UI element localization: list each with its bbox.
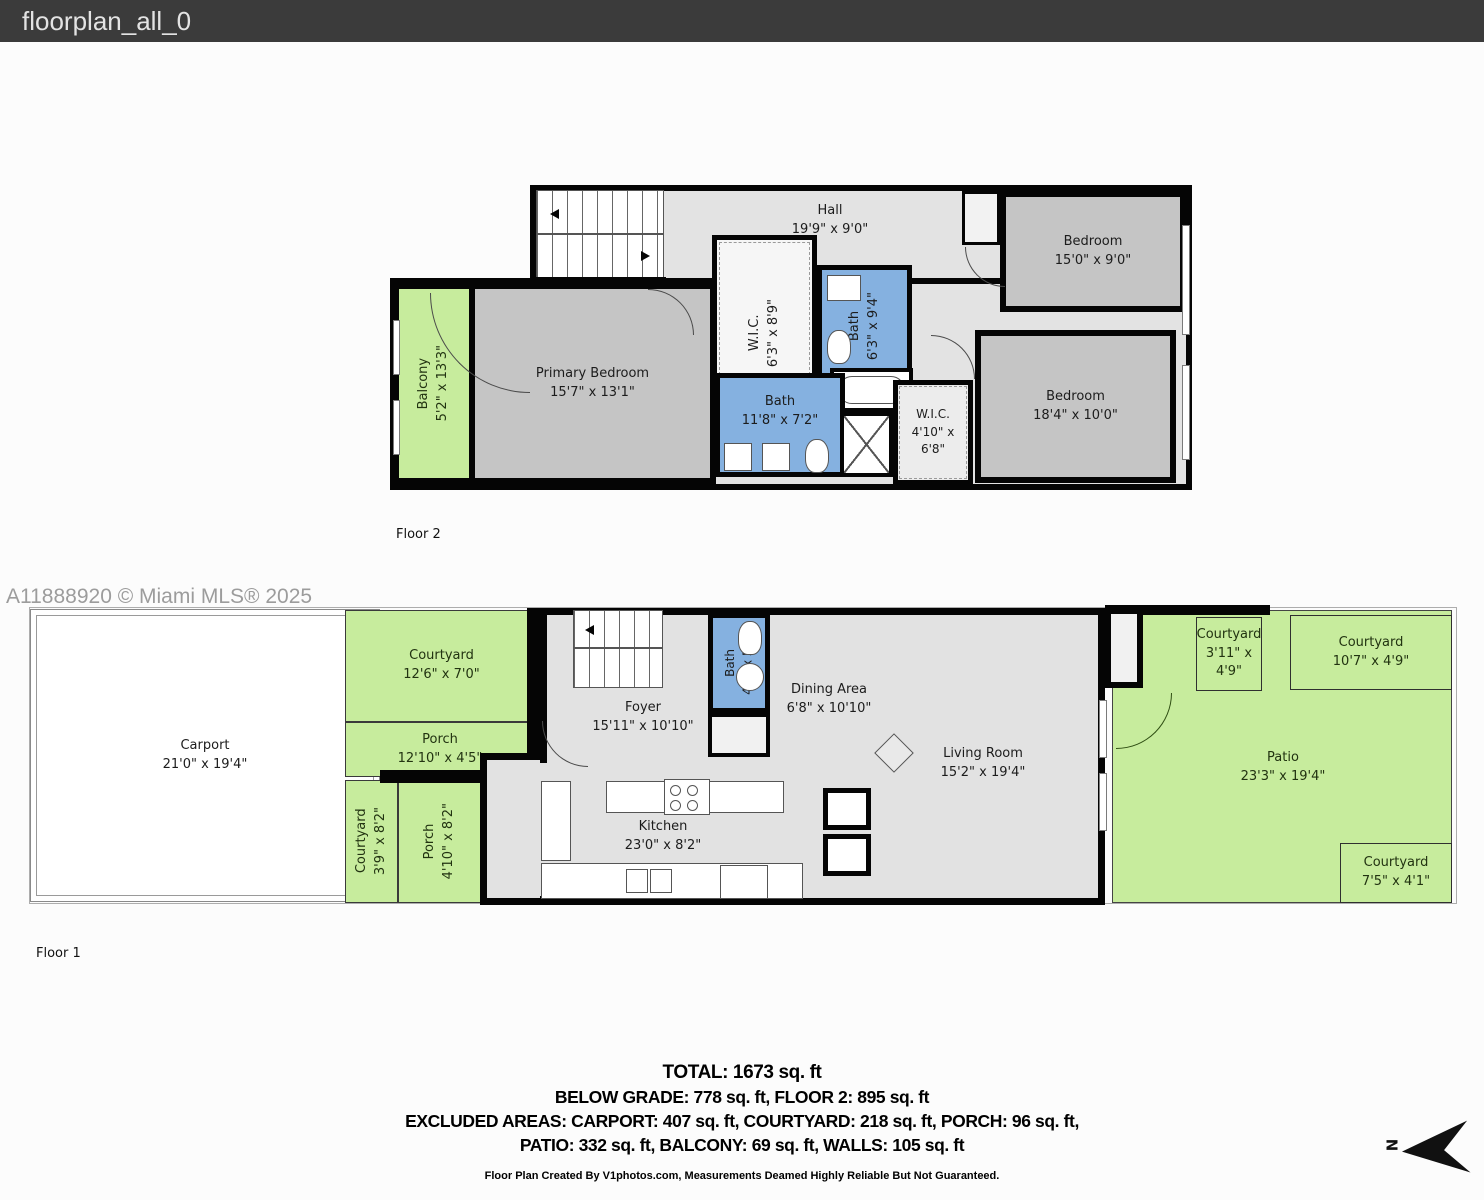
- room-name: Courtyard: [353, 807, 372, 875]
- room-dims: 6'3" x 9'4": [865, 292, 884, 360]
- room-name: Porch: [422, 731, 458, 750]
- total-area: TOTAL: 1673 sq. ft: [0, 1062, 1484, 1084]
- window-icon: [1099, 773, 1107, 831]
- room-dims: 3'9" x 8'2": [372, 807, 391, 875]
- room-name: W.I.C.: [746, 299, 765, 367]
- title-bar: floorplan_all_0: [0, 0, 1484, 42]
- closet-icon: [823, 834, 871, 876]
- floor2-bedroom-bottom-right: Bedroom 18'4" x 10'0": [975, 330, 1176, 483]
- room-dims: 11'8" x 7'2": [742, 412, 818, 431]
- room-dims: 3'11" x 4'9": [1197, 645, 1261, 683]
- sink-icon: [724, 443, 752, 471]
- room-name: Carport: [180, 737, 229, 756]
- room-dims: 6'3" x 8'9": [765, 299, 784, 367]
- room-name: Courtyard: [1364, 854, 1429, 873]
- floor1-courtyard-1: Courtyard 12'6" x 7'0": [345, 610, 538, 722]
- floor1-courtyard-4: Courtyard 10'7" x 4'9": [1290, 615, 1452, 690]
- room-dims: 21'0" x 19'4": [163, 756, 248, 775]
- room-dims: 12'10" x 4'5": [398, 750, 483, 769]
- toilet-icon: [805, 439, 829, 473]
- stove-icon: [664, 779, 710, 815]
- sink-icon: [736, 663, 764, 691]
- stair-arrow-icon: [641, 251, 655, 261]
- room-name: Courtyard: [1197, 626, 1262, 645]
- room-dims: 15'0" x 9'0": [1055, 252, 1131, 271]
- room-name: Bedroom: [1046, 388, 1105, 407]
- room-name: W.I.C.: [916, 406, 950, 423]
- sink-icon: [626, 869, 648, 893]
- floor2-plan: Hall 19'9" x 9'0" Bedroom 15'0" x 9'0" B…: [390, 185, 1192, 490]
- room-dims: 18'4" x 10'0": [1033, 407, 1118, 426]
- toilet-icon: [738, 621, 762, 655]
- stair-arrow-icon: [545, 209, 559, 219]
- room-name: Courtyard: [409, 647, 474, 666]
- sink-icon: [650, 869, 672, 893]
- room-dims: 10'7" x 4'9": [1333, 653, 1409, 672]
- room-name: Bath: [765, 393, 795, 412]
- floor2-label: Floor 2: [396, 527, 441, 542]
- stairs-icon: [573, 610, 663, 688]
- sink-icon: [827, 275, 861, 301]
- wall-segment: [380, 770, 480, 783]
- sink-icon: [762, 443, 790, 471]
- floor1-courtyard-2: Courtyard 3'9" x 8'2": [345, 780, 398, 903]
- floor2-wic-2: W.I.C. 4'10" x 6'8": [893, 380, 973, 485]
- north-label: N: [1383, 1139, 1401, 1152]
- floor1-plan: Carport 21'0" x 19'4" Courtyard 12'6" x …: [28, 605, 1460, 908]
- storage-room: [1105, 608, 1143, 688]
- grade-areas: BELOW GRADE: 778 sq. ft, FLOOR 2: 895 sq…: [0, 1087, 1484, 1108]
- closet-icon: [823, 788, 871, 830]
- north-arrow-icon: N: [1386, 1118, 1476, 1182]
- page-title: floorplan_all_0: [22, 6, 191, 37]
- stair-landing: [537, 233, 663, 235]
- stairs-icon: [536, 190, 664, 280]
- stair-landing: [574, 647, 662, 649]
- room-dims: 4'10" x 6'8": [898, 424, 968, 459]
- window-icon: [1182, 365, 1190, 460]
- area-summary: TOTAL: 1673 sq. ft BELOW GRADE: 778 sq. …: [0, 1062, 1484, 1182]
- fridge-icon: [720, 865, 768, 899]
- floor1-courtyard-3: Courtyard 3'11" x 4'9": [1196, 617, 1262, 691]
- window-icon: [1099, 700, 1107, 758]
- room-name: Bath: [722, 632, 739, 695]
- floor1-label: Floor 1: [36, 946, 81, 961]
- closet-icon: [708, 713, 770, 757]
- stair-arrow-icon: [580, 625, 594, 635]
- toilet-icon: [827, 330, 851, 364]
- credit-line: Floor Plan Created By V1photos.com, Meas…: [0, 1170, 1484, 1182]
- room-dims: 7'5" x 4'1": [1362, 873, 1430, 892]
- room-dims: 15'7" x 13'1": [550, 384, 635, 403]
- excluded-areas-1: EXCLUDED AREAS: CARPORT: 407 sq. ft, COU…: [0, 1111, 1484, 1132]
- shower-icon: [840, 412, 893, 477]
- room-dims: 4'10" x 8'2": [440, 803, 459, 879]
- window-icon: [1182, 225, 1190, 335]
- window-icon: [393, 320, 400, 375]
- floor1-courtyard-5: Courtyard 7'5" x 4'1": [1340, 843, 1452, 903]
- room-name: Porch: [421, 803, 440, 879]
- room-name: Balcony: [415, 345, 434, 421]
- floor1-carport: Carport 21'0" x 19'4": [30, 609, 380, 902]
- floor2-vestibule: [962, 191, 1000, 245]
- kitchen-counter: [541, 781, 571, 861]
- window-icon: [393, 400, 400, 455]
- room-dims: 5'2" x 13'3": [434, 345, 453, 421]
- room-name: Courtyard: [1339, 634, 1404, 653]
- room-name: Bedroom: [1064, 233, 1123, 252]
- room-dims: 12'6" x 7'0": [403, 666, 479, 685]
- excluded-areas-2: PATIO: 332 sq. ft, BALCONY: 69 sq. ft, W…: [0, 1135, 1484, 1156]
- floor2-bedroom-top-right: Bedroom 15'0" x 9'0": [1000, 191, 1186, 312]
- floor1-porch-2: Porch 4'10" x 8'2": [398, 780, 481, 903]
- room-name: Primary Bedroom: [536, 365, 649, 384]
